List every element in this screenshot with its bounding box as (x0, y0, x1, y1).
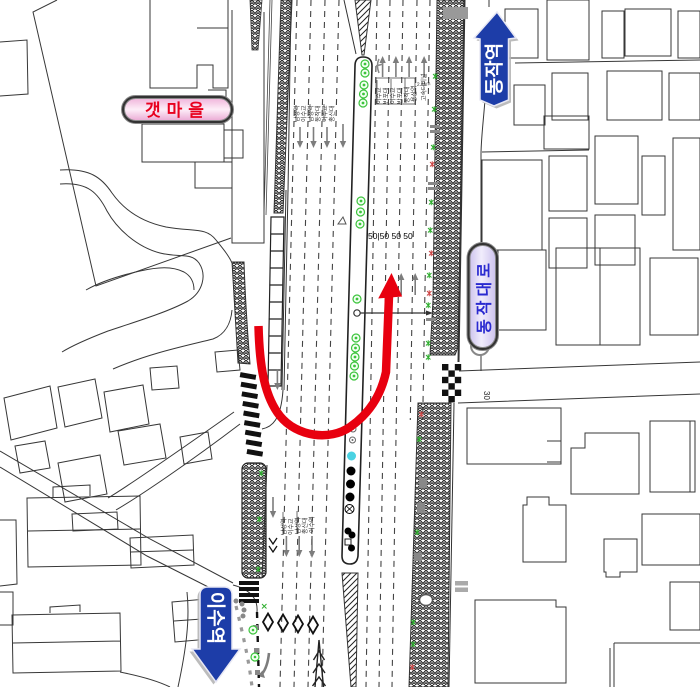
svg-text:반포대: 반포대 (382, 87, 390, 104)
svg-text:동작대: 동작대 (403, 86, 411, 103)
svg-text:이수교: 이수교 (287, 518, 295, 535)
svg-text:이수역: 이수역 (205, 592, 227, 644)
svg-text:총신대: 총신대 (301, 517, 309, 534)
svg-text:반포대: 반포대 (396, 87, 404, 104)
svg-text:남성역: 남성역 (280, 518, 288, 535)
svg-text:남성역: 남성역 (307, 105, 315, 122)
svg-text:이수교: 이수교 (389, 87, 397, 104)
svg-text:50|50 50 50: 50|50 50 50 (368, 231, 413, 241)
svg-text:동작대: 동작대 (314, 105, 322, 122)
svg-text:남성역: 남성역 (293, 105, 301, 122)
svg-text:이수교: 이수교 (300, 105, 308, 122)
svg-text:이수교: 이수교 (321, 105, 329, 122)
svg-text:남성역: 남성역 (294, 517, 302, 534)
svg-text:동작대로: 동작대로 (476, 259, 494, 334)
svg-text:갯마을: 갯마을 (145, 101, 210, 120)
svg-text:2.4km: 2.4km (417, 81, 431, 88)
svg-text:동작역: 동작역 (484, 43, 506, 95)
svg-text:30: 30 (482, 391, 491, 400)
svg-text:총신대: 총신대 (328, 105, 336, 122)
svg-text:이수역: 이수역 (308, 516, 316, 533)
